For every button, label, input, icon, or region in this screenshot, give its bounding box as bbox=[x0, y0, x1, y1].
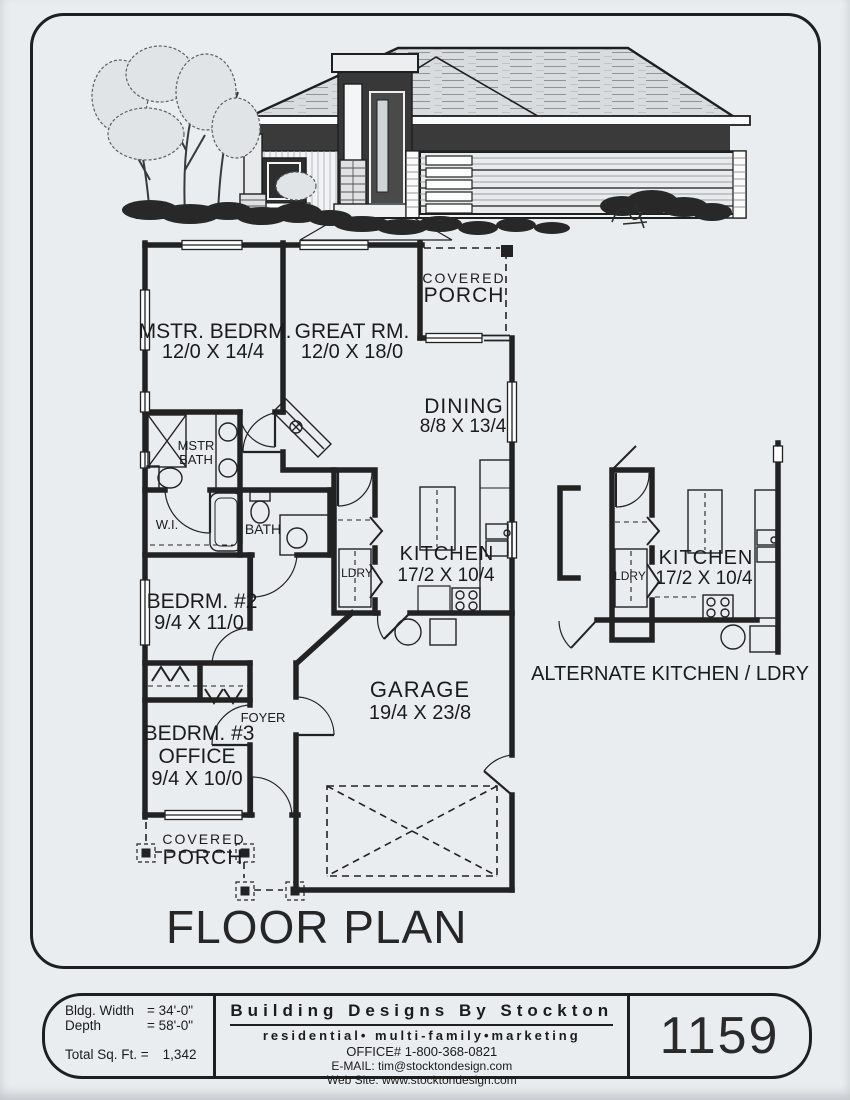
label-bedrm3-dims: 9/4 X 10/0 bbox=[151, 768, 242, 790]
entry-tower bbox=[332, 54, 418, 218]
label-mstr-bath-2: BATH bbox=[179, 452, 213, 467]
sqft-row: Total Sq. Ft. = 1,342 bbox=[65, 1047, 205, 1062]
company-info: Building Designs By Stockton residential… bbox=[216, 996, 630, 1076]
company-name: Building Designs By Stockton bbox=[230, 1001, 613, 1026]
label-great-rm: GREAT RM. bbox=[295, 320, 410, 343]
label-wi: W.I. bbox=[156, 517, 178, 532]
label-ldry: LDRY bbox=[341, 566, 373, 580]
label-mstr-bedrm: MSTR. BEDRM. bbox=[139, 320, 292, 343]
label-dining: DINING bbox=[424, 395, 504, 418]
label-mstr-bedrm-dims: 12/0 X 14/4 bbox=[162, 341, 264, 363]
label-alt-ldry: LDRY bbox=[614, 569, 646, 583]
label-garage-dims: 19/4 X 23/8 bbox=[369, 702, 471, 724]
floor-plan: MSTR. BEDRM. 12/0 X 14/4 GREAT RM. 12/0 … bbox=[137, 241, 809, 901]
garage-door-windows bbox=[426, 156, 472, 213]
water-heater bbox=[395, 619, 421, 645]
label-great-rm-dims: 12/0 X 18/0 bbox=[301, 341, 403, 363]
label-alt-kitchen: KITCHEN bbox=[659, 547, 754, 569]
label-alternate-caption: ALTERNATE KITCHEN / LDRY bbox=[531, 663, 809, 685]
mstr-vanity bbox=[216, 412, 240, 490]
label-garage: GARAGE bbox=[370, 677, 470, 702]
bldg-width-label: Bldg. Width bbox=[65, 1003, 147, 1018]
company-tagline: residential• multi-family•marketing bbox=[226, 1028, 617, 1043]
porch-post-top bbox=[501, 245, 513, 257]
blueprint-page: MSTR. BEDRM. 12/0 X 14/4 GREAT RM. 12/0 … bbox=[0, 0, 850, 1100]
depth-value: = 58'-0" bbox=[147, 1018, 193, 1033]
plan-number: 1159 bbox=[660, 1006, 780, 1066]
house-elevation bbox=[92, 46, 750, 240]
label-porch-bottom-covered: COVERED bbox=[162, 831, 245, 847]
label-mstr-bath-1: MSTR bbox=[178, 438, 215, 453]
label-bedrm2-dims: 9/4 X 11/0 bbox=[154, 612, 244, 634]
label-kitchen: KITCHEN bbox=[400, 543, 495, 565]
label-bedrm2: BEDRM. #2 bbox=[147, 590, 258, 613]
website: Web Site: www.stocktondesign.com bbox=[226, 1073, 617, 1087]
bldg-width-value: = 34'-0" bbox=[147, 1003, 193, 1018]
softener bbox=[430, 619, 456, 645]
tower-cap bbox=[332, 54, 418, 72]
entry-column bbox=[344, 84, 362, 162]
upper-band bbox=[246, 125, 730, 151]
label-bath: BATH bbox=[245, 521, 281, 537]
label-dining-dims: 8/8 X 13/4 bbox=[420, 416, 507, 437]
building-specs: Bldg. Width = 34'-0" Depth = 58'-0" Tota… bbox=[45, 996, 216, 1076]
email: E-MAIL: tim@stocktondesign.com bbox=[226, 1059, 617, 1073]
bldg-width-row: Bldg. Width = 34'-0" bbox=[65, 1003, 205, 1018]
label-bedrm3: BEDRM. #3 bbox=[144, 722, 255, 745]
title-block: Bldg. Width = 34'-0" Depth = 58'-0" Tota… bbox=[42, 993, 812, 1079]
floor-plan-title: FLOOR PLAN bbox=[166, 900, 467, 954]
depth-row: Depth = 58'-0" bbox=[65, 1018, 205, 1033]
room-labels: MSTR. BEDRM. 12/0 X 14/4 GREAT RM. 12/0 … bbox=[139, 270, 809, 869]
hip-roof bbox=[238, 48, 742, 122]
label-kitchen-dims: 17/2 X 10/4 bbox=[397, 565, 495, 586]
plan-number-box: 1159 bbox=[630, 996, 809, 1076]
toilet-mstr bbox=[147, 466, 159, 490]
label-alt-kitchen-dims: 17/2 X 10/4 bbox=[655, 568, 753, 589]
depth-label: Depth bbox=[65, 1018, 147, 1033]
sqft-label: Total Sq. Ft. = bbox=[65, 1047, 149, 1062]
label-porch-top: PORCH bbox=[424, 284, 505, 307]
toilet-hall bbox=[250, 492, 270, 501]
office-phone: OFFICE# 1-800-368-0821 bbox=[226, 1044, 617, 1059]
label-porch-bottom: PORCH bbox=[163, 846, 244, 869]
eave-fascia bbox=[230, 116, 750, 125]
label-bedrm3-office: OFFICE bbox=[159, 745, 236, 768]
sqft-value: 1,342 bbox=[163, 1047, 197, 1062]
